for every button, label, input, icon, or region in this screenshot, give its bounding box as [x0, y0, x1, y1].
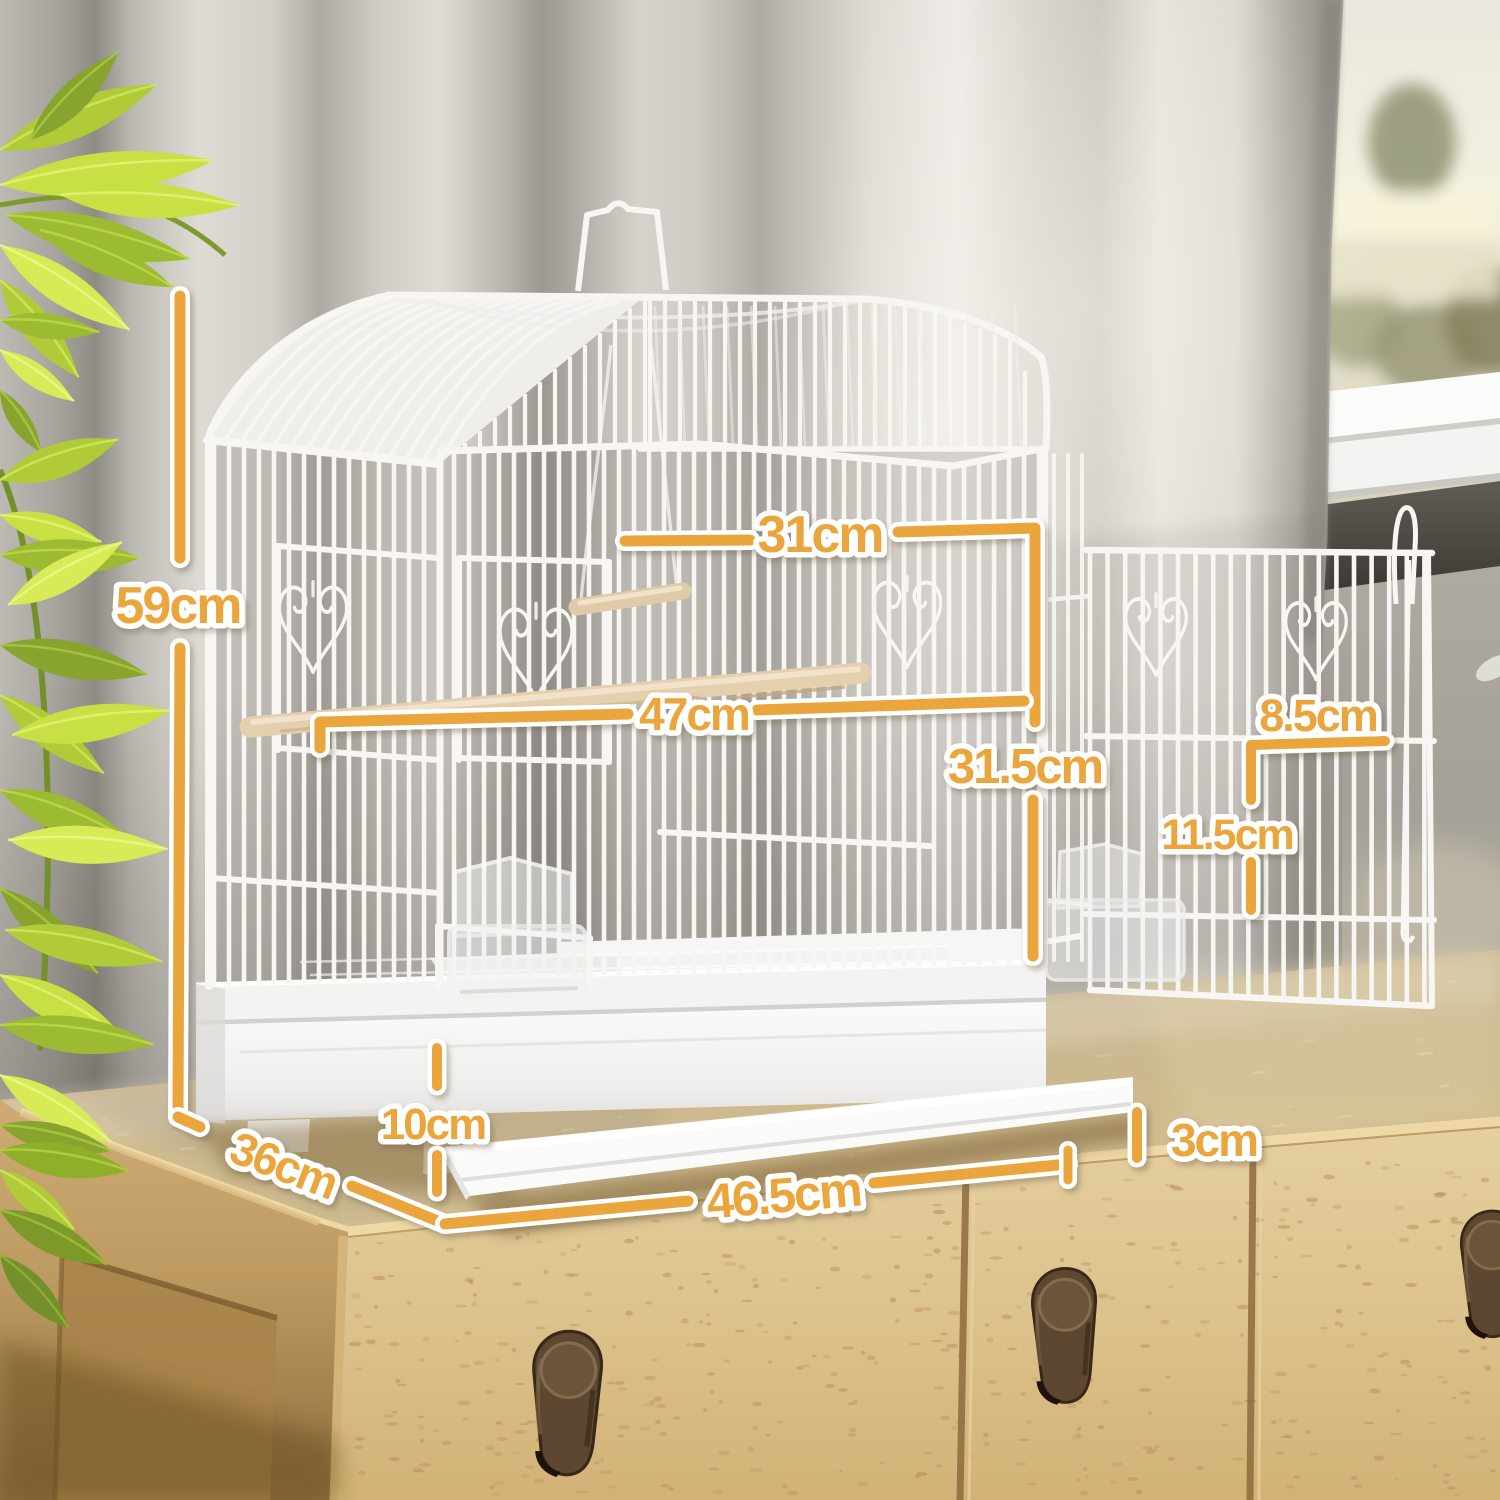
svg-text:59cm: 59cm — [116, 577, 241, 635]
svg-text:10cm: 10cm — [381, 1100, 486, 1149]
svg-text:31cm: 31cm — [758, 506, 883, 564]
svg-text:31.5cm: 31.5cm — [948, 740, 1102, 794]
svg-text:8.5cm: 8.5cm — [1259, 690, 1377, 741]
svg-text:11.5cm: 11.5cm — [1161, 811, 1292, 859]
svg-text:3cm: 3cm — [1171, 1114, 1257, 1166]
svg-text:47cm: 47cm — [639, 688, 749, 740]
